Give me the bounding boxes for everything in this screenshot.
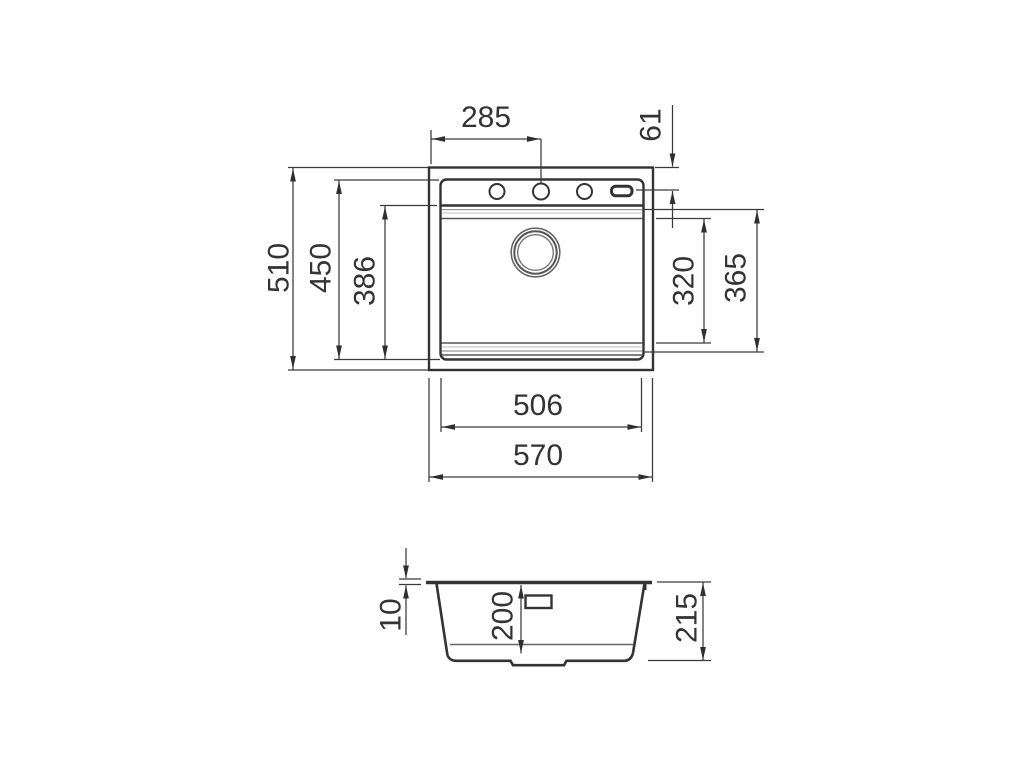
tap-hole-right-icon: [577, 184, 592, 199]
dim-label-200: 200: [487, 591, 520, 641]
dim-bowl-front-to-back: 386: [349, 206, 438, 360]
dim-label-61: 61: [635, 108, 668, 141]
dim-label-386: 386: [349, 256, 382, 306]
dim-overall-front-to-back: 510: [263, 168, 429, 371]
dim-inner-width: 506: [441, 378, 642, 432]
deck-step-lines-top: [442, 206, 643, 219]
dim-label-506: 506: [513, 389, 563, 422]
dim-label-215: 215: [671, 593, 704, 643]
technical-drawing-page: 285 61 510 450: [0, 0, 1024, 768]
section-overflow-icon: [526, 596, 552, 609]
bowl-step-lines-bottom: [442, 343, 643, 355]
drain-icon: [511, 228, 560, 277]
dim-label-570: 570: [513, 439, 563, 472]
dim-tap-hole-from-left: 285: [431, 101, 541, 183]
tap-hole-center-icon: [533, 184, 549, 200]
section-bottom-shell: [448, 653, 634, 665]
section-right-wall: [633, 584, 645, 654]
top-view: 285 61 510 450: [263, 101, 765, 482]
dim-label-10: 10: [375, 598, 408, 631]
dim-label-285: 285: [461, 101, 511, 134]
tap-hole-left-icon: [490, 184, 505, 199]
dim-label-320: 320: [668, 256, 701, 306]
sink-technical-drawing: 285 61 510 450: [0, 0, 1024, 768]
section-left-wall: [437, 584, 448, 656]
dim-bowl-inner-front-to-back: 320: [656, 219, 711, 344]
section-view: 10 200 215: [375, 548, 712, 665]
dim-label-365: 365: [720, 253, 753, 303]
dim-overall-height: 215: [648, 582, 711, 661]
dim-rim-height: 10: [375, 548, 422, 635]
dim-label-450: 450: [305, 243, 338, 293]
overflow-slot-icon: [612, 186, 633, 196]
dim-label-510: 510: [263, 243, 296, 293]
dim-bowl-depth: 200: [487, 585, 524, 654]
